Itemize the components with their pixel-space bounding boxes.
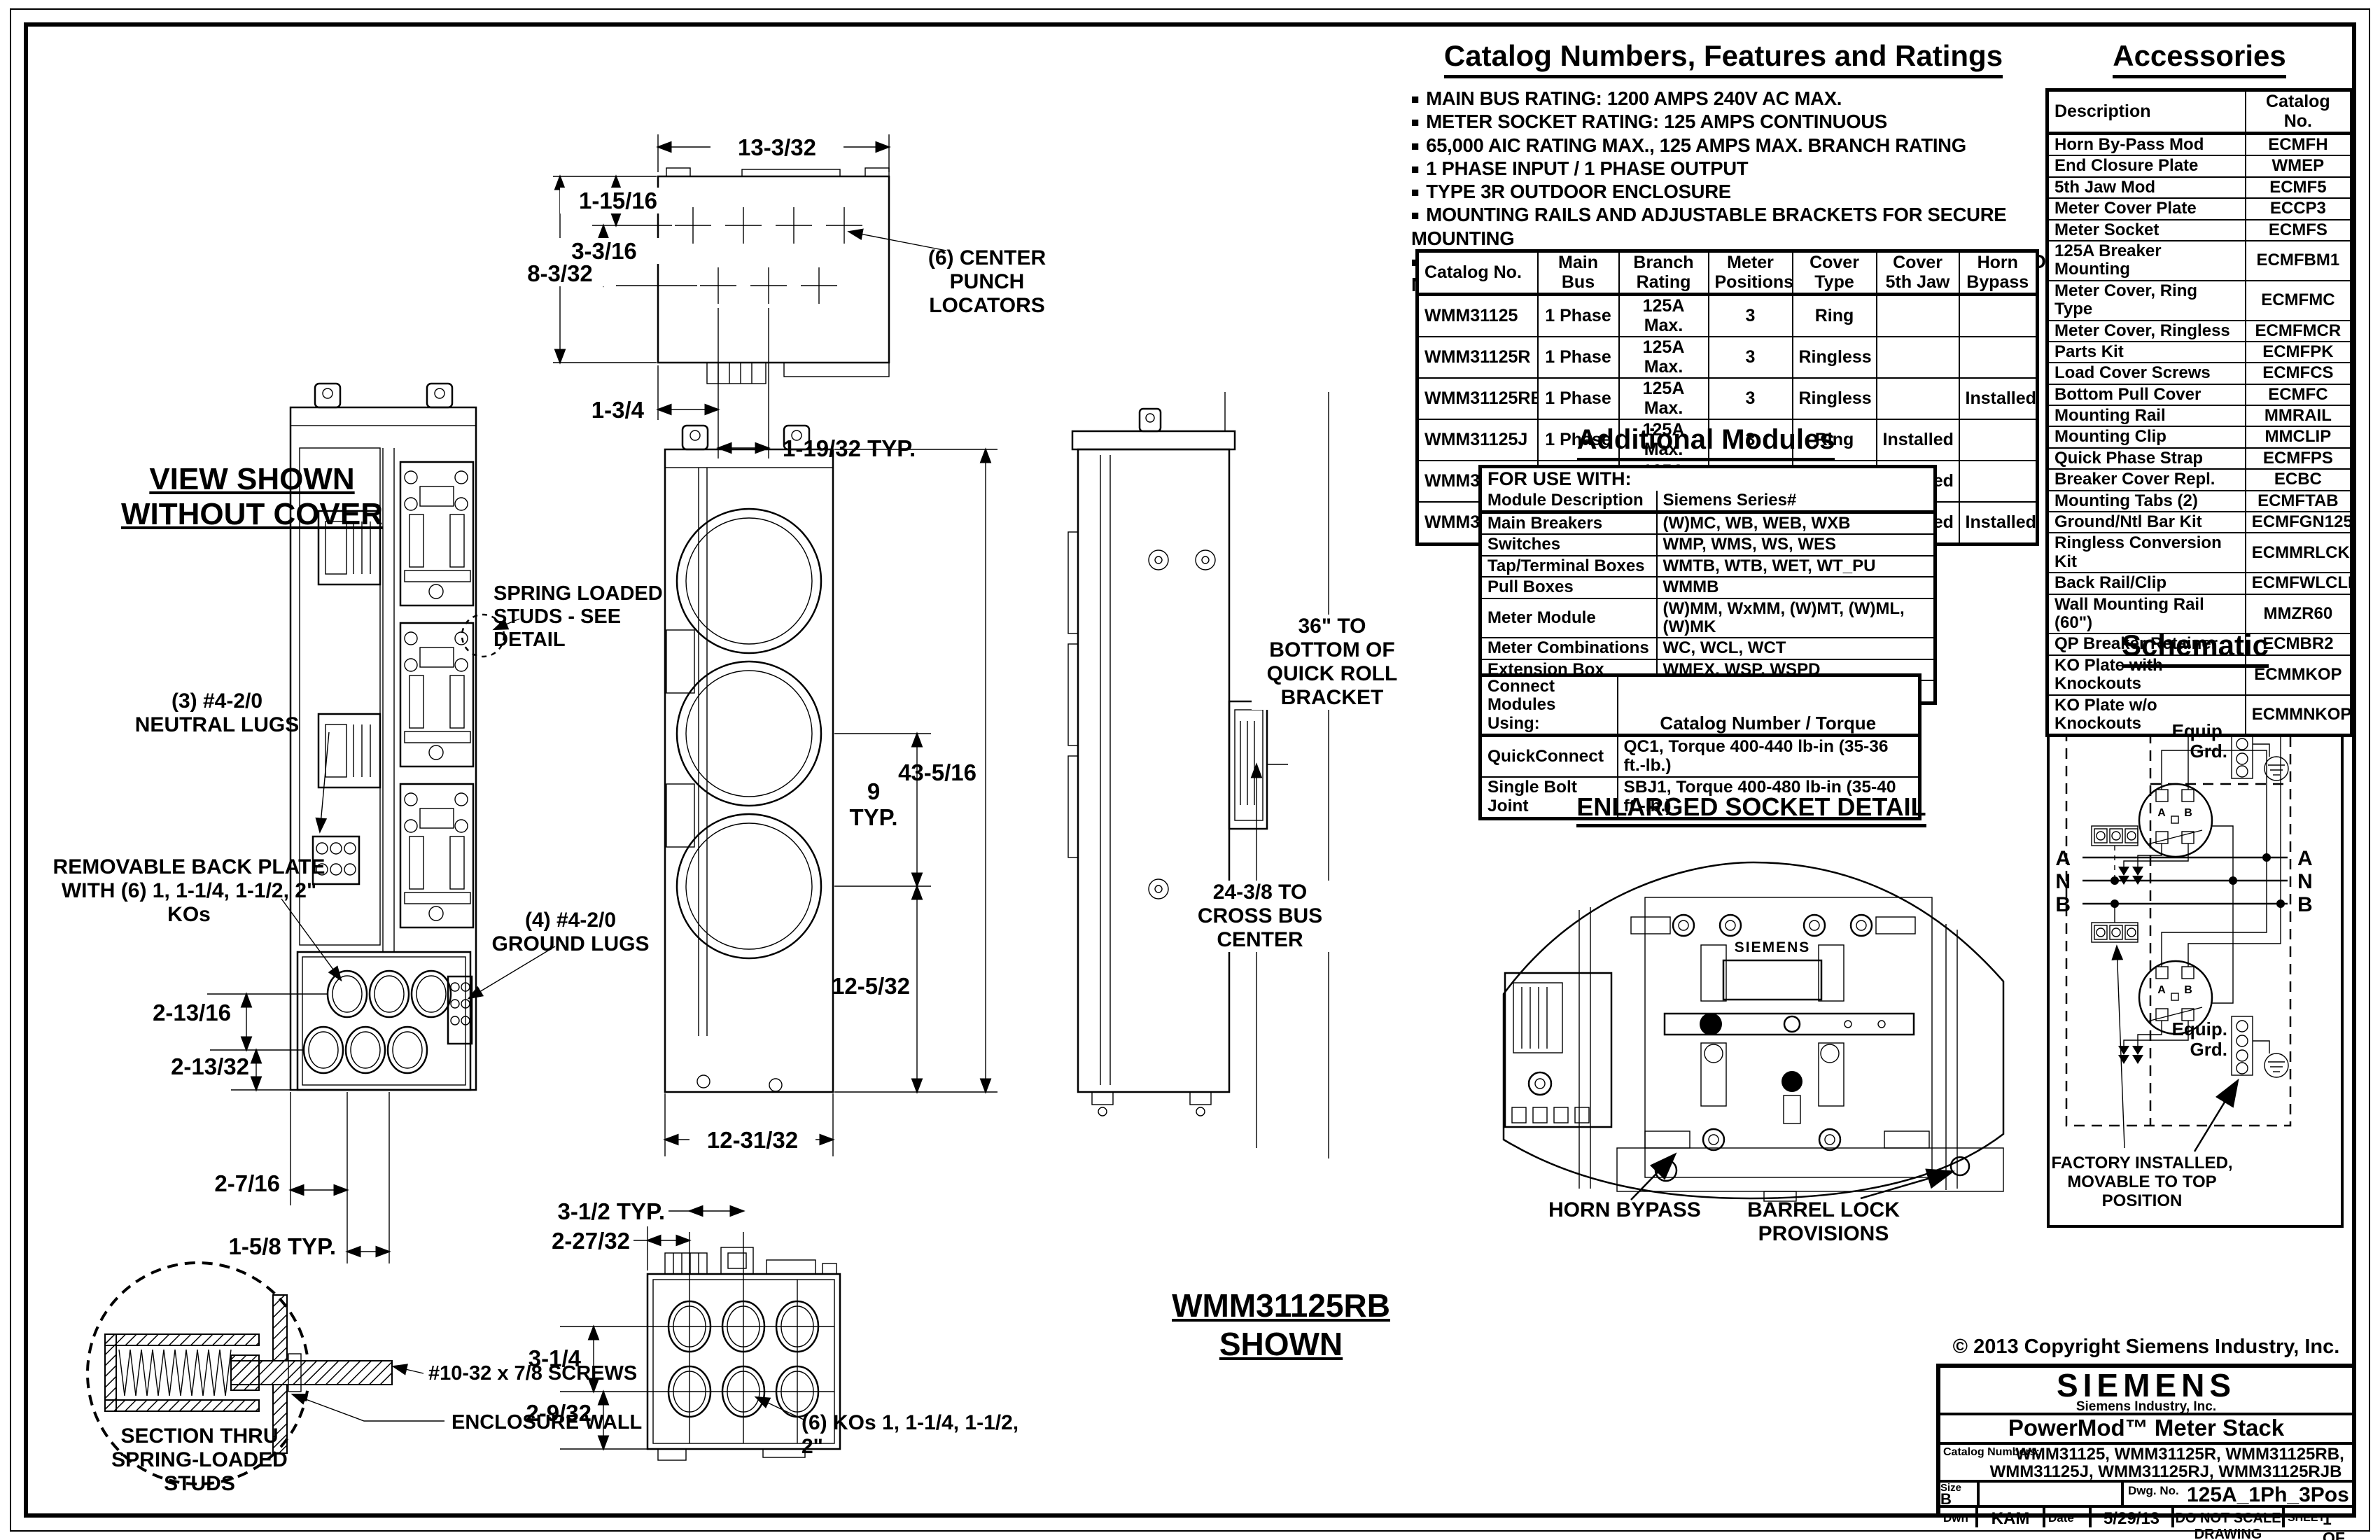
table-row: Meter SocketECMFS <box>2047 220 2352 241</box>
terminal-block-top <box>2092 826 2138 885</box>
catalog-numbers-line1: WMM31125, WMM31125R, WMM31125RB, <box>2010 1445 2349 1463</box>
center-front-view-drawing <box>665 426 997 1156</box>
table-cell: Ground/Ntl Bar Kit <box>2047 512 2246 533</box>
table-row: End Closure PlateWMEP <box>2047 155 2352 176</box>
table-row: Load Cover ScrewsECMFCS <box>2047 363 2352 384</box>
table-cell: ECMFS <box>2246 220 2352 241</box>
table-cell: WMEP <box>2246 155 2352 176</box>
table-cell: Meter Module <box>1480 598 1657 638</box>
catalog-numbers-line2: WMM31125J, WMM31125RJ, WMM31125RJB <box>1982 1463 2349 1480</box>
bus-label-a-left: A <box>2055 847 2071 870</box>
ratings-bullet: ■1 PHASE INPUT / 1 PHASE OUTPUT <box>1411 157 2083 180</box>
table-cell: WC, WCL, WCT <box>1657 638 1935 659</box>
bus-label-n-right: N <box>2297 870 2313 893</box>
table-row: Meter Cover, RinglessECMFMCR <box>2047 321 2352 342</box>
table-row: Mounting RailMMRAIL <box>2047 405 2352 426</box>
table-row: Meter Cover, Ring TypeECMFMC <box>2047 281 2352 321</box>
no-scale-note: DO NOT SCALE DRAWING <box>2171 1508 2282 1527</box>
col-header: Catalog Number / Torque <box>1618 675 1920 736</box>
table-cell: Ringless Conversion Kit <box>2047 533 2246 573</box>
table-cell <box>1959 337 2038 378</box>
table-cell: ECMFCS <box>2246 363 2352 384</box>
dwg-no-label: Dwg. No. <box>2128 1484 2179 1498</box>
dim-2-7-16: 2-7/16 <box>161 1170 280 1196</box>
table-cell: ECMFTAB <box>2246 491 2352 512</box>
title-block: SIEMENS Siemens Industry, Inc. PowerMod™… <box>1936 1364 2356 1518</box>
table-row: Meter Module(W)MM, WxMM, (W)MT, (W)ML, (… <box>1480 598 1935 638</box>
dim-1-3-4: 1-3/4 <box>539 397 644 423</box>
table-cell: Ringless <box>1793 337 1877 378</box>
bus-label-a-right: A <box>2297 847 2313 870</box>
meter-module-cluster <box>400 623 473 766</box>
cross-bus-label: 24-3/8 TO CROSS BUS CENTER <box>1183 881 1337 952</box>
company-name: Siemens Industry, Inc. <box>1940 1401 2352 1412</box>
table-cell: QuickConnect <box>1480 736 1618 777</box>
table-cell: MMRAIL <box>2246 405 2352 426</box>
kos-label: (6) KOs 1, 1-1/4, 1-1/2, 2" <box>801 1411 1032 1459</box>
table-cell: Switches <box>1480 534 1657 555</box>
knockouts <box>304 971 451 1073</box>
table-cell: 1 Phase <box>1538 337 1619 378</box>
table-row: Bottom Pull CoverECMFC <box>2047 384 2352 405</box>
table-row: Pull BoxesWMMB <box>1480 577 1935 598</box>
table-cell: 125A Breaker Mounting <box>2047 241 2246 281</box>
dim-3-1-2: 3-1/2 TYP. <box>514 1198 665 1224</box>
table-row: Horn By-Pass ModECMFH <box>2047 134 2352 156</box>
sheet-label: SHEET <box>2288 1512 2325 1525</box>
copyright-text: © 2013 Copyright Siemens Industry, Inc. <box>1936 1336 2356 1359</box>
neutral-lugs-label: (3) #4-2/0 NEUTRAL LUGS <box>105 689 329 737</box>
table-cell: Back Rail/Clip <box>2047 573 2246 594</box>
socket-terminal-a: A <box>2157 984 2166 996</box>
table-cell: Meter Combinations <box>1480 638 1657 659</box>
table-cell: ECMFBM1 <box>2246 241 2352 281</box>
table-cell: (W)MC, WB, WEB, WXB <box>1657 512 1935 535</box>
table-row: Tap/Terminal BoxesWMTB, WTB, WET, WT_PU <box>1480 556 1935 577</box>
dim-9-typ: 9 TYP. <box>837 778 910 831</box>
meter-module-cluster <box>400 784 473 927</box>
table-cell: 1 Phase <box>1538 295 1619 337</box>
table-row: WMM31125RB1 Phase125A Max.3RinglessInsta… <box>1417 378 2038 419</box>
table-cell: 3 <box>1709 378 1793 419</box>
table-cell: WMMB <box>1657 577 1935 598</box>
col-header: Cover Type <box>1793 251 1877 295</box>
table-cell: WMTB, WTB, WET, WT_PU <box>1657 556 1935 577</box>
table-cell: Wall Mounting Rail (60") <box>2047 594 2246 634</box>
table-row: Breaker Cover Repl.ECBC <box>2047 469 2352 490</box>
center-punch-marks <box>675 207 862 304</box>
table-cell: Meter Cover, Ringless <box>2047 321 2246 342</box>
table-row: Mounting ClipMMCLIP <box>2047 426 2352 447</box>
enclosure-wall-label: ENCLOSURE WALL <box>451 1411 661 1434</box>
back-plate-label: REMOVABLE BACK PLATE WITH (6) 1, 1-1/4, … <box>42 855 336 927</box>
table-cell <box>1959 461 2038 502</box>
table-cell: Parts Kit <box>2047 342 2246 363</box>
table-row: Ringless Conversion KitECMMRLCK <box>2047 533 2352 573</box>
table-row: WMM311251 Phase125A Max.3Ring <box>1417 295 2038 337</box>
table-cell: WMM31125RB <box>1417 378 1538 419</box>
ratings-bullet: ■TYPE 3R OUTDOOR ENCLOSURE <box>1411 180 2083 203</box>
date-label: Date <box>2043 1508 2089 1527</box>
dim-1-19-32: 1-19/32 TYP. <box>783 435 979 461</box>
table-row: 125A Breaker MountingECMFBM1 <box>2047 241 2352 281</box>
dwn-label: Dwn <box>1940 1508 1975 1527</box>
socket-brand-text: SIEMENS <box>1735 939 1811 955</box>
table-row: Ground/Ntl Bar KitECMFGN125 <box>2047 512 2352 533</box>
center-punch-label: (6) CENTER PUNCH LOCATORS <box>899 246 1074 318</box>
size-cell: Size B <box>1940 1483 1977 1505</box>
table-cell: ECMMNKOP <box>2246 695 2352 736</box>
equip-grd-bottom-label: Equip. Grd. <box>2157 1019 2227 1060</box>
table-cell: 1 Phase <box>1538 378 1619 419</box>
table-cell: Breaker Cover Repl. <box>2047 469 2246 490</box>
equip-grd-top-label: Equip. Grd. <box>2157 721 2227 762</box>
table-cell: 3 <box>1709 337 1793 378</box>
table-cell: WMP, WMS, WS, WES <box>1657 534 1935 555</box>
additional-modules-heading: Additional Modules <box>1443 424 1968 461</box>
table-cell: Mounting Rail <box>2047 405 2246 426</box>
table-row: Meter Cover PlateECCP3 <box>2047 198 2352 219</box>
for-use-with-label: FOR USE WITH: <box>1480 467 1935 491</box>
table-cell: MMZR60 <box>2246 594 2352 634</box>
table-cell: Tap/Terminal Boxes <box>1480 556 1657 577</box>
table-cell: ECMFWLCLIP <box>2246 573 2352 594</box>
dwg-no-value: 125A_1Ph_3Pos <box>2187 1483 2349 1507</box>
accessories-heading: Accessories <box>2045 39 2353 78</box>
socket-detail-heading: ENLARGED SOCKET DETAIL <box>1576 792 1926 827</box>
col-header: Main Bus <box>1538 251 1619 295</box>
socket-terminal-b: B <box>2184 984 2192 996</box>
col-header: Module Description <box>1480 491 1657 512</box>
table-cell <box>1959 419 2038 461</box>
table-cell: ECCP3 <box>2246 198 2352 219</box>
col-header: Catalog No. <box>2246 90 2352 134</box>
table-cell: QC1, Torque 400-440 lb-in (35-36 ft.-lb.… <box>1618 736 1920 777</box>
dim-8-3-32: 8-3/32 <box>504 260 616 286</box>
dim-13-3-32: 13-3/32 <box>710 134 843 160</box>
schematic-heading: Schematic <box>2048 629 2342 668</box>
table-cell: 5th Jaw Mod <box>2047 177 2246 198</box>
dwg-no-cell: Dwg. No. 125A_1Ph_3Pos <box>2121 1483 2352 1505</box>
section-detail-title: SECTION THRU SPRING-LOADED STUDS <box>94 1424 304 1496</box>
table-cell: ECMFMCR <box>2246 321 2352 342</box>
date-value: 5/29/13 <box>2089 1508 2171 1527</box>
size-value: B <box>1940 1493 1977 1506</box>
table-row: Wall Mounting Rail (60")MMZR60 <box>2047 594 2352 634</box>
schematic-meter-socket-1: A B <box>2118 736 2285 908</box>
table-cell: Main Breakers <box>1480 512 1657 535</box>
table-cell: 125A Max. <box>1619 378 1709 419</box>
table-cell: Mounting Clip <box>2047 426 2246 447</box>
table-cell: Ring <box>1793 295 1877 337</box>
factory-installed-label: FACTORY INSTALLED, MOVABLE TO TOP POSITI… <box>2051 1154 2233 1210</box>
title-block-catalog-row: Catalog Numbers: WMM31125, WMM31125R, WM… <box>1940 1442 2352 1480</box>
ground-lugs-label: (4) #4-2/0 GROUND LUGS <box>490 909 651 956</box>
dim-1-15-16: 1-15/16 <box>560 188 676 213</box>
table-row: QuickConnectQC1, Torque 400-440 lb-in (3… <box>1480 736 1920 777</box>
table-cell: Ringless <box>1793 378 1877 419</box>
table-cell: 125A Max. <box>1619 337 1709 378</box>
dim-2-27-32: 2-27/32 <box>507 1228 630 1254</box>
ratings-bullet: ■MAIN BUS RATING: 1200 AMPS 240V AC MAX. <box>1411 87 2083 110</box>
barrel-lock-label: BARREL LOCK PROVISIONS <box>1743 1198 1904 1246</box>
table-cell: Meter Socket <box>2047 220 2246 241</box>
ratings-bullet: ■MOUNTING RAILS AND ADJUSTABLE BRACKETS … <box>1411 203 2083 250</box>
empty-cell <box>1977 1483 2121 1505</box>
title-block-dwg-row: Size B Dwg. No. 125A_1Ph_3Pos <box>1940 1480 2352 1505</box>
col-header: Branch Rating <box>1619 251 1709 295</box>
bus-label-n-left: N <box>2055 870 2071 893</box>
table-row: SwitchesWMP, WMS, WS, WES <box>1480 534 1935 555</box>
dwn-value: KAM <box>1975 1508 2043 1527</box>
table-cell: ECMFH <box>2246 134 2352 156</box>
dim-12-5-32: 12-5/32 <box>801 973 910 999</box>
bus-label-b-left: B <box>2055 893 2071 916</box>
side-view-drawing <box>1068 392 1329 1158</box>
col-header: Connect Modules Using: <box>1480 675 1618 736</box>
equip-ground-bottom <box>2232 1016 2288 1077</box>
ratings-bullet: ■METER SOCKET RATING: 125 AMPS CONTINUOU… <box>1411 110 2083 133</box>
socket-terminal-a: A <box>2157 807 2166 819</box>
title-block-footer-row: Dwn KAM Date 5/29/13 DO NOT SCALE DRAWIN… <box>1940 1505 2352 1527</box>
table-cell: Horn By-Pass Mod <box>2047 134 2246 156</box>
table-cell: ECMFC <box>2246 384 2352 405</box>
table-cell: Meter Cover Plate <box>2047 198 2246 219</box>
bus-label-b-right: B <box>2297 893 2313 916</box>
title-block-brand-row: SIEMENS Siemens Industry, Inc. <box>1940 1369 2352 1413</box>
table-cell: 3 <box>1709 295 1793 337</box>
table-cell: Pull Boxes <box>1480 577 1657 598</box>
screws-label: #10-32 x 7/8 SCREWS <box>428 1362 666 1385</box>
table-cell: ECMFPS <box>2246 448 2352 469</box>
table-cell <box>1959 295 2038 337</box>
col-header: Catalog No. <box>1417 251 1538 295</box>
dim-1-5-8: 1-5/8 TYP. <box>126 1233 336 1259</box>
dim-2-13-32: 2-13/32 <box>137 1053 249 1079</box>
table-cell: ECBC <box>2246 469 2352 490</box>
table-cell: ECMFPK <box>2246 342 2352 363</box>
table-cell: Quick Phase Strap <box>2047 448 2246 469</box>
table-cell: MMCLIP <box>2246 426 2352 447</box>
table-cell: WMM31125 <box>1417 295 1538 337</box>
table-cell: ECMFMC <box>2246 281 2352 321</box>
table-cell: Mounting Tabs (2) <box>2047 491 2246 512</box>
table-cell: Installed <box>1959 378 2038 419</box>
drawing-sheet: SIEMENS <box>0 0 2380 1540</box>
table-cell <box>1877 295 1959 337</box>
table-cell: Meter Cover, Ring Type <box>2047 281 2246 321</box>
dim-2-13-16: 2-13/16 <box>105 1000 231 1025</box>
col-header: Meter Positions <box>1709 251 1793 295</box>
table-cell: End Closure Plate <box>2047 155 2246 176</box>
socket-terminal-b: B <box>2184 807 2192 819</box>
table-cell: Installed <box>1959 502 2038 545</box>
table-row: Meter CombinationsWC, WCL, WCT <box>1480 638 1935 659</box>
sheet-value: 1 OF 1 <box>2323 1510 2352 1540</box>
front-view-title: VIEW SHOWN WITHOUT COVER <box>91 462 413 531</box>
table-row: WMM31125R1 Phase125A Max.3Ringless <box>1417 337 2038 378</box>
table-cell: ECMF5 <box>2246 177 2352 198</box>
table-cell: Load Cover Screws <box>2047 363 2246 384</box>
model-shown-label: WMM31125RB SHOWN <box>1141 1287 1421 1364</box>
spring-studs-label: SPRING LOADED STUDS - SEE DETAIL <box>493 582 696 651</box>
table-row: Parts KitECMFPK <box>2047 342 2352 363</box>
table-row: Back Rail/ClipECMFWLCLIP <box>2047 573 2352 594</box>
col-header: Horn Bypass <box>1959 251 2038 295</box>
table-cell: (W)MM, WxMM, (W)MT, (W)ML, (W)MK <box>1657 598 1935 638</box>
table-row: Main Breakers(W)MC, WB, WEB, WXB <box>1480 512 1935 535</box>
sheet-cell: SHEET 1 OF 1 <box>2282 1508 2352 1527</box>
ratings-bullet: ■65,000 AIC RATING MAX., 125 AMPS MAX. B… <box>1411 134 2083 157</box>
table-cell <box>1877 378 1959 419</box>
table-cell: Bottom Pull Cover <box>2047 384 2246 405</box>
title-block-product-row: PowerMod™ Meter Stack <box>1940 1413 2352 1442</box>
table-row: 5th Jaw ModECMF5 <box>2047 177 2352 198</box>
brand-logo-text: SIEMENS <box>1940 1369 2352 1401</box>
table-row: Quick Phase StrapECMFPS <box>2047 448 2352 469</box>
col-header: Description <box>2047 90 2246 134</box>
catalog-heading: Catalog Numbers, Features and Ratings <box>1408 39 2038 78</box>
table-cell: WMM31125R <box>1417 337 1538 378</box>
additional-modules-table: FOR USE WITH: Module Description Siemens… <box>1478 465 1937 705</box>
table-row: Mounting Tabs (2)ECMFTAB <box>2047 491 2352 512</box>
terminal-block-bottom <box>2092 899 2138 942</box>
product-name: PowerMod™ Meter Stack <box>1940 1415 2352 1441</box>
ground-lugs <box>448 976 472 1044</box>
table-cell: 125A Max. <box>1619 295 1709 337</box>
col-header: Siemens Series# <box>1657 491 1935 512</box>
col-header: Cover 5th Jaw <box>1877 251 1959 295</box>
table-cell: ECMMRLCK <box>2246 533 2352 573</box>
table-cell <box>1877 337 1959 378</box>
dim-12-31-32: 12-31/32 <box>689 1127 815 1153</box>
socket-detail-drawing: SIEMENS <box>1504 862 2003 1201</box>
quick-roll-label: 36" TO BOTTOM OF QUICK ROLL BRACKET <box>1252 615 1413 710</box>
table-cell: ECMFGN125 <box>2246 512 2352 533</box>
horn-bypass-label: HORN BYPASS <box>1548 1198 1716 1222</box>
